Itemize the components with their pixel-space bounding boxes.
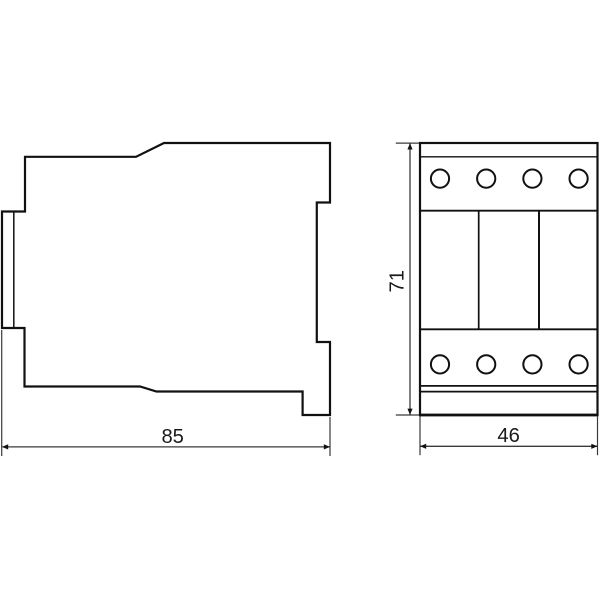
svg-text:85: 85 <box>161 426 183 448</box>
svg-text:46: 46 <box>497 425 519 447</box>
svg-text:71: 71 <box>386 270 408 292</box>
